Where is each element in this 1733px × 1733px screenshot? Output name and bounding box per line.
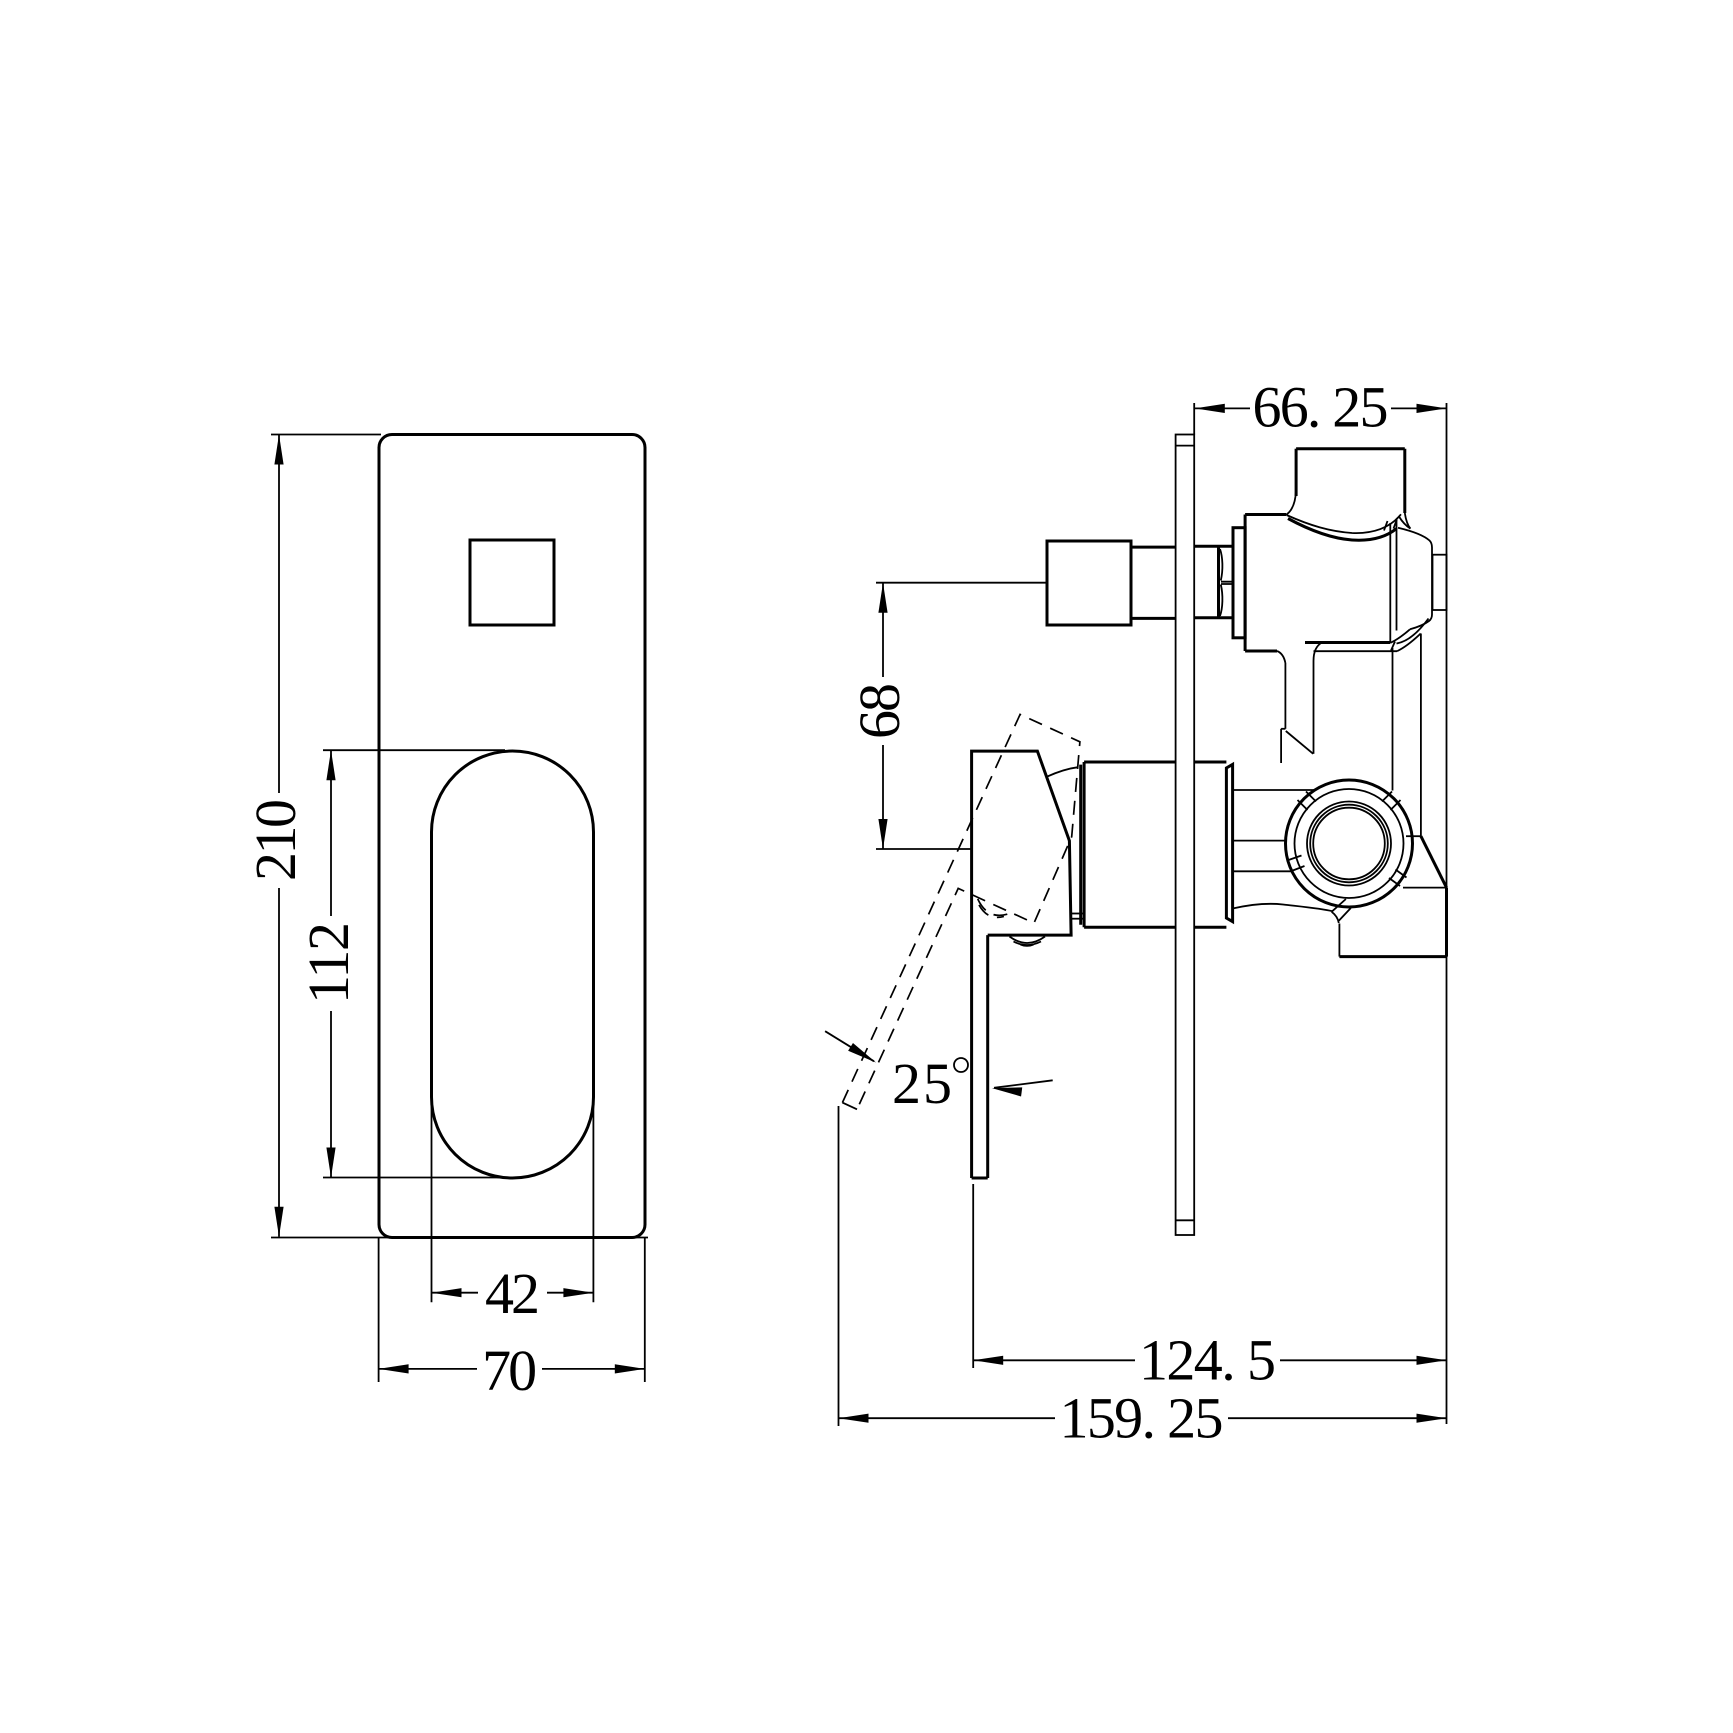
svg-text:70: 70 (482, 1338, 537, 1403)
svg-text:159. 25: 159. 25 (1060, 1386, 1224, 1451)
svg-text:68: 68 (847, 683, 912, 739)
svg-text:210: 210 (243, 799, 308, 881)
svg-text:42: 42 (485, 1261, 540, 1326)
svg-text:124. 5: 124. 5 (1139, 1328, 1276, 1393)
svg-text:66. 25: 66. 25 (1253, 375, 1389, 440)
svg-text:112: 112 (296, 922, 361, 1004)
